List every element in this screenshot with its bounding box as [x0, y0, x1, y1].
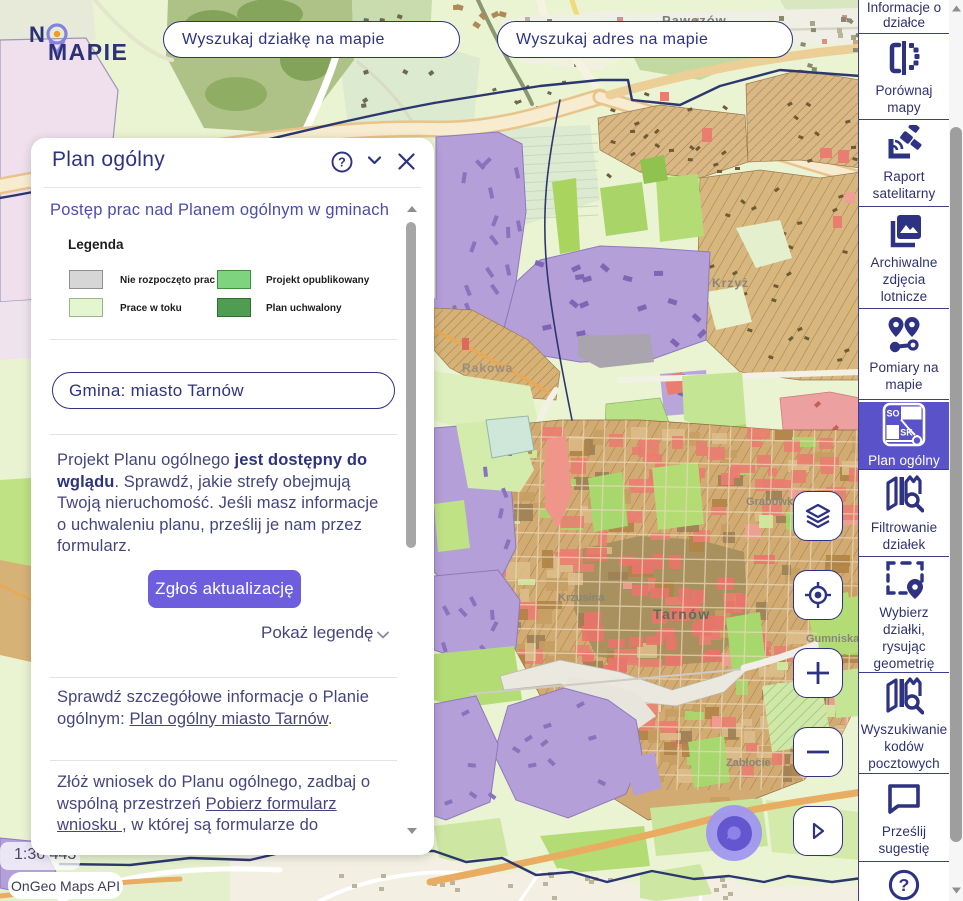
- svg-text:Krzusina: Krzusina: [558, 592, 605, 604]
- svg-text:Rakowa: Rakowa: [462, 361, 513, 375]
- svg-text:Zabłocie: Zabłocie: [726, 757, 771, 769]
- svg-text:Krzyż: Krzyż: [712, 276, 749, 290]
- svg-text:SO: SO: [886, 408, 899, 418]
- svg-text:N: N: [29, 22, 45, 47]
- svg-text:Gumniska: Gumniska: [806, 633, 860, 645]
- svg-text:SK: SK: [900, 427, 913, 437]
- svg-text:?: ?: [338, 156, 346, 170]
- svg-text:MAPIE: MAPIE: [48, 39, 128, 65]
- svg-text:?: ?: [899, 875, 910, 895]
- svg-text:Tarnów: Tarnów: [653, 606, 711, 622]
- svg-text:Grabówka: Grabówka: [746, 496, 800, 508]
